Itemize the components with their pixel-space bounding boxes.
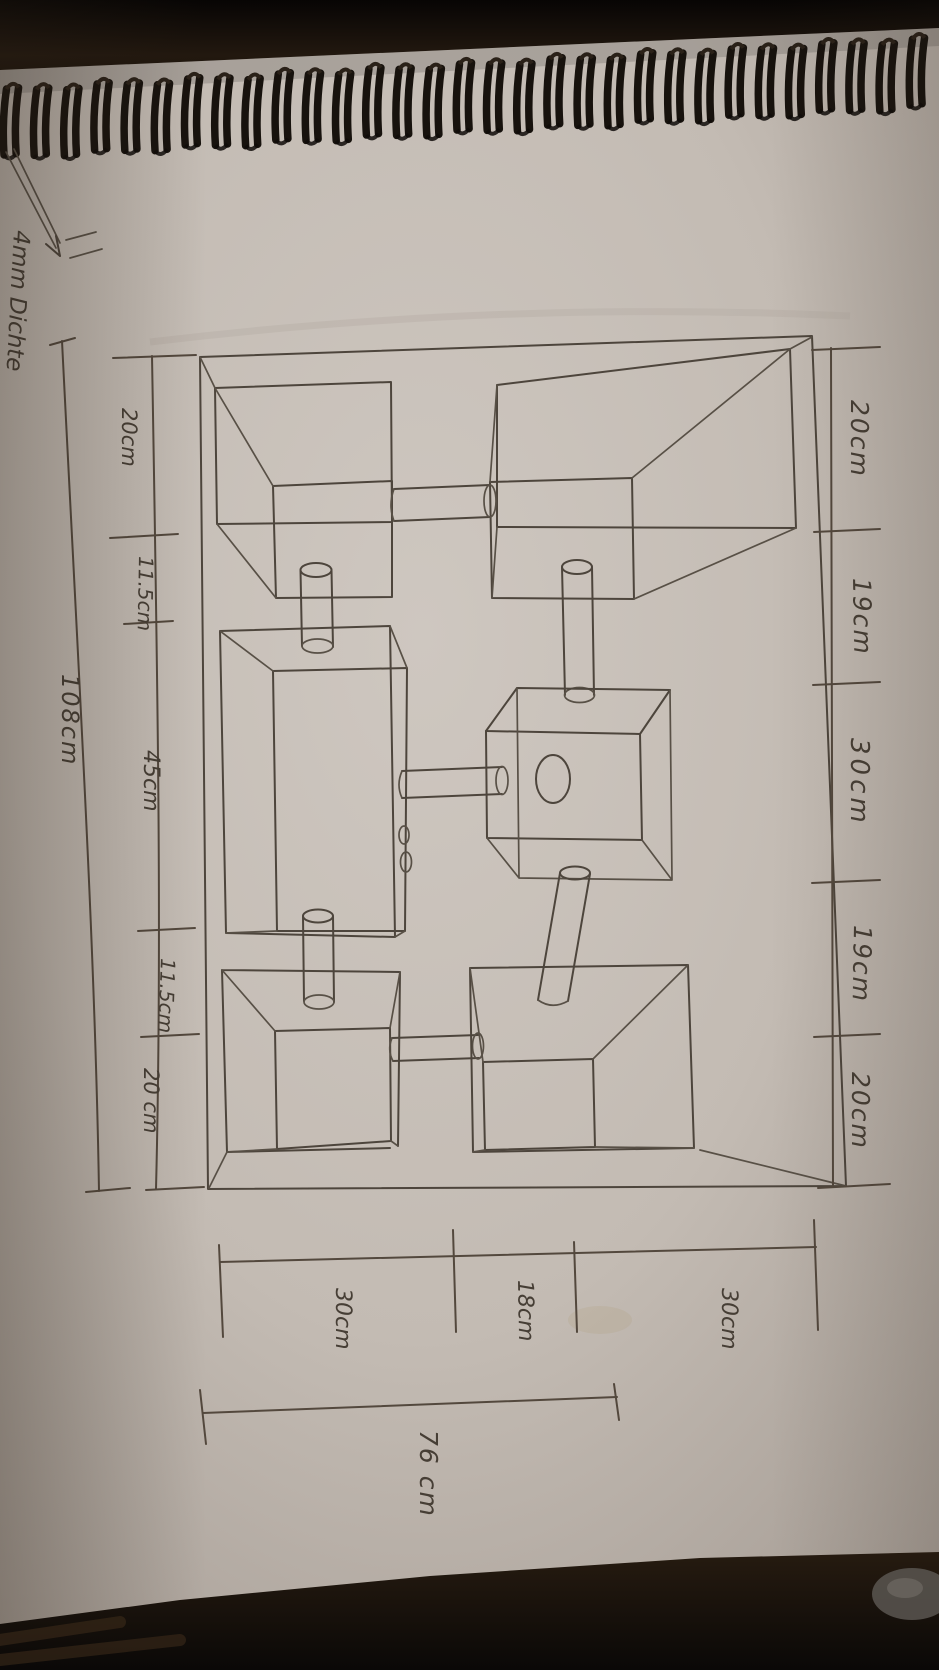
notebook-photo: 108cm 20cm 11.5cm 45cm 11.5cm 20 cm 20cm… xyxy=(0,0,939,1670)
photo-vignette xyxy=(0,0,939,1670)
